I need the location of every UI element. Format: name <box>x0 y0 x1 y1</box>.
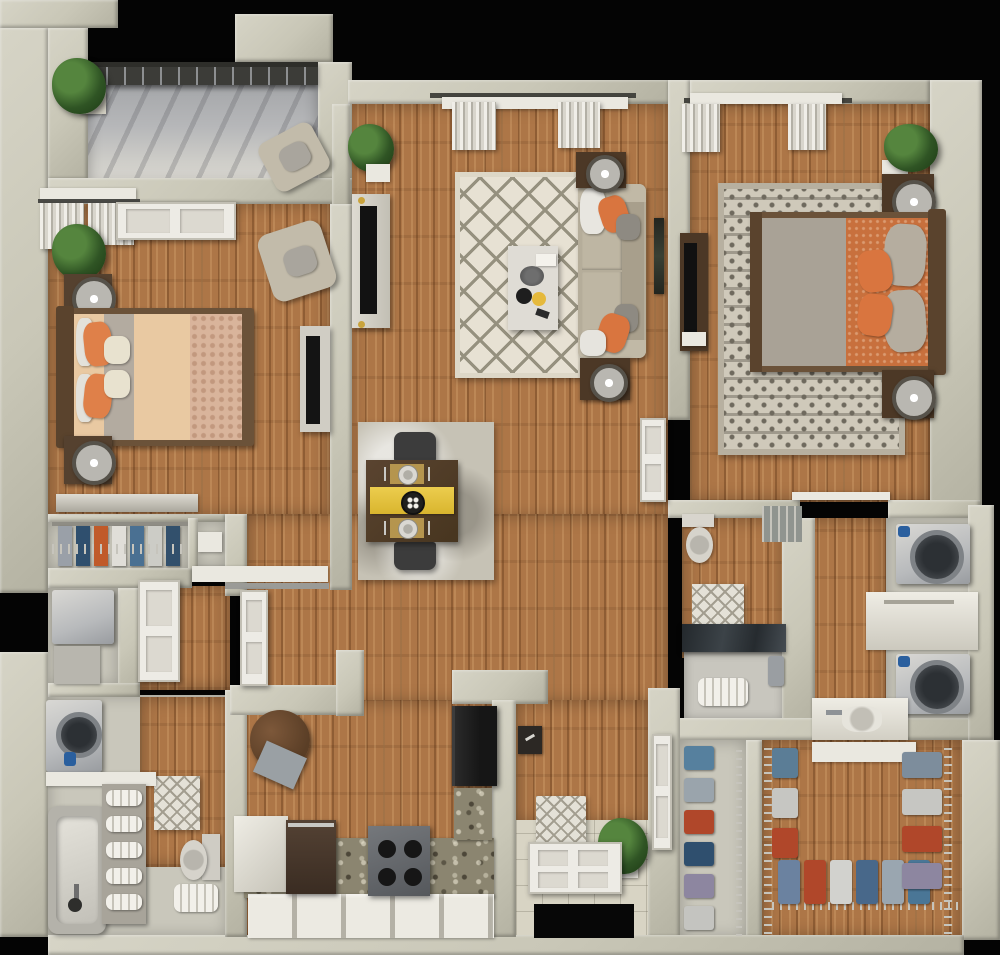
living-lamp-top <box>586 155 624 193</box>
bathroom2-toilet-tank <box>682 514 714 527</box>
nook-counter-top <box>192 566 328 582</box>
bedroom1-armchair-pillow <box>281 243 320 280</box>
balcony-door-panel <box>180 209 224 233</box>
shower-glass <box>682 624 786 652</box>
bedroom2-door-panel <box>645 464 661 492</box>
reachin-clothes <box>684 874 714 898</box>
bed2-gray-throw <box>762 218 846 366</box>
bedroom2-window-sill <box>690 93 842 104</box>
reachin-clothes <box>684 746 714 770</box>
hall-closet-door-open <box>652 734 672 850</box>
coffee-table-remote <box>535 308 550 319</box>
bed2-footboard <box>750 212 762 372</box>
dining-chair-bottom <box>394 542 436 570</box>
wall-closet-divider <box>746 740 762 938</box>
bed1-cream-pillow <box>104 370 130 398</box>
walkin-clothes-bottom <box>804 860 826 904</box>
wall-bathroom1-right <box>225 690 247 937</box>
coffee-table-bowl <box>520 266 544 286</box>
shower-towels <box>698 678 748 706</box>
entry-doormat <box>536 796 586 844</box>
stove-burner <box>378 840 396 858</box>
sofa-white-pillow-bottom <box>580 330 606 356</box>
bedroom2-lamp-bottom <box>892 376 936 420</box>
front-door-panel <box>578 872 608 888</box>
rolled-towel <box>106 790 142 806</box>
bedroom2-door-panel <box>645 426 661 454</box>
bed2-headboard <box>928 209 946 375</box>
stove-burner <box>378 868 396 886</box>
bedroom2-door-open <box>640 418 666 502</box>
bed1-cream-pillow <box>104 336 130 364</box>
living-console-knob <box>358 197 365 204</box>
bedroom2-dresser-drawer <box>682 332 706 346</box>
hall-door-panel <box>246 600 262 632</box>
living-curtain-left <box>452 102 496 150</box>
reachin-clothes <box>684 842 714 866</box>
wall-stub-dining <box>336 650 364 716</box>
hall-door-panel <box>246 642 262 674</box>
wall-left-lower <box>0 652 48 937</box>
wall-bottom <box>48 935 964 955</box>
entry-key-box <box>518 726 542 754</box>
bathroom2-bath-mat <box>692 584 744 628</box>
bathroom1-bath-mat <box>154 776 200 830</box>
wall-bedroom1-right <box>330 204 352 590</box>
wall-bath2-hall-divider <box>782 518 815 723</box>
floorplan-canvas <box>0 0 1000 955</box>
walkin-clothes-left <box>772 748 798 778</box>
reachin-wire-rail <box>736 744 742 936</box>
closet1-wire-shelf <box>52 544 188 554</box>
walkin-clothes-left <box>772 828 798 858</box>
bathroom1-detergent <box>64 752 76 766</box>
rolled-towel <box>106 894 142 910</box>
stove <box>368 826 430 896</box>
bathroom1-washer-door <box>56 712 102 758</box>
bed1-headboard <box>56 306 74 448</box>
laundry-washer-door <box>910 530 964 584</box>
wall-top-chunk <box>235 14 333 62</box>
laundry-detergent <box>898 656 910 667</box>
wall-closetblock-top <box>48 514 226 522</box>
walkin-clothes-right <box>902 752 942 778</box>
laundry-cabinet-handle <box>884 600 954 604</box>
coffee-table-book <box>536 254 556 266</box>
place-setting-plate-bottom <box>398 519 418 539</box>
laundry-dryer-door <box>910 660 964 714</box>
kitchen-left-cabinet <box>234 816 288 892</box>
bathroom1-floor-towels <box>174 884 218 912</box>
cutlery <box>428 467 430 481</box>
shower-head <box>768 656 784 686</box>
place-setting-plate-top <box>398 465 418 485</box>
bedroom2-closet-slider <box>792 492 890 500</box>
reachin-clothes <box>684 810 714 834</box>
balcony-door <box>116 202 236 240</box>
wall-utility-right <box>118 588 140 690</box>
rolled-towel <box>106 842 142 858</box>
water-heater-base <box>54 646 100 684</box>
entry-key-box-detail <box>525 734 535 742</box>
walkin-left-rack <box>764 744 772 934</box>
bedroom2-tv <box>684 243 697 341</box>
living-console-knob <box>358 321 365 328</box>
nook-tray <box>198 532 222 552</box>
bathroom1-door-panel <box>146 636 172 672</box>
hall-closet-door-panel <box>656 796 668 838</box>
wall-topleft-corner <box>0 0 118 28</box>
balcony-plant <box>52 58 106 114</box>
bedroom2-curtain-left <box>682 104 720 152</box>
balcony-door-panel <box>126 209 170 233</box>
bedroom2-curtain-right <box>788 104 826 150</box>
dishwasher-handle <box>288 823 334 827</box>
living-curtain-right <box>558 102 600 148</box>
linen-shelf <box>102 784 146 924</box>
vanity-basin <box>842 706 882 732</box>
sofa-gray-pillow-top <box>616 214 640 240</box>
living-tv <box>360 206 377 314</box>
water-heater <box>52 590 114 644</box>
wall-right-bottom <box>962 740 1000 940</box>
cutlery <box>384 467 386 481</box>
bedroom1-tv <box>306 336 320 424</box>
entry-threshold <box>534 904 634 938</box>
bathroom1-door-panel <box>146 590 172 626</box>
cutlery <box>384 521 386 535</box>
laundry-detergent <box>898 526 910 537</box>
bedroom1-plant <box>52 224 106 280</box>
vanity-sink <box>812 698 908 740</box>
rolled-towel <box>106 868 142 884</box>
coffee-table-yellow-dish <box>532 292 546 306</box>
walkin-clothes-left <box>772 788 798 818</box>
vanity-faucet <box>826 710 842 715</box>
front-door-panel <box>538 872 568 888</box>
dishwasher <box>286 820 336 894</box>
coffee-table <box>508 246 558 330</box>
balcony-armchair-pillow <box>276 138 315 175</box>
bathroom1-toilet-bowl <box>180 840 207 880</box>
walkin-clothes-bottom <box>830 860 852 904</box>
bathroom1-door-open <box>138 580 180 682</box>
walkin-clothes-right <box>902 789 942 815</box>
kitchen-counter-right <box>454 788 492 840</box>
living-wall-art <box>654 218 664 294</box>
bedroom2-plant <box>884 124 938 172</box>
reachin-clothes <box>684 778 714 802</box>
sliding-door-track <box>225 583 329 589</box>
living-lamp-bottom <box>590 364 628 402</box>
refrigerator <box>452 706 497 786</box>
walkin-clothes-bottom <box>778 860 800 904</box>
bathroom2-toilet-bowl <box>686 527 713 563</box>
coffee-table-plate <box>516 288 532 304</box>
front-door-open <box>528 842 622 894</box>
walkin-clothes-bottom <box>882 860 904 904</box>
living-plant-pot <box>366 164 390 182</box>
bathtub-drain <box>68 898 82 912</box>
wall-bedroom2-bottom-right <box>888 500 980 518</box>
kitchen-cabinet-fronts <box>248 894 494 938</box>
stove-burner <box>404 868 422 886</box>
hall-door-open <box>240 590 268 686</box>
walkin-right-rack <box>944 748 952 934</box>
bathtub <box>48 806 106 934</box>
bedroom1-bed <box>56 308 254 446</box>
wall-kitchen-top <box>230 685 350 715</box>
bedroom1-dresser <box>56 494 198 512</box>
walkin-clothes-right <box>902 826 942 852</box>
cutlery <box>428 521 430 535</box>
wall-bathroom1-top <box>48 683 140 697</box>
balcony-railing <box>88 62 318 85</box>
wall-block-kitchen-entry <box>452 670 548 704</box>
bedroom1-lamp-bottom <box>72 441 116 485</box>
dining-chair-top <box>394 432 436 462</box>
walkin-clothes-right <box>902 863 942 889</box>
hall-closet-door-panel <box>656 744 668 786</box>
walkin-clothes-bottom <box>856 860 878 904</box>
dining-centerpiece <box>401 491 425 515</box>
bed1-foot-blanket <box>190 314 242 440</box>
walkin-shelf-box <box>812 742 916 762</box>
wall-living-left <box>332 104 350 208</box>
rolled-towel <box>106 816 142 832</box>
bathroom2-storage-shelf <box>762 506 802 542</box>
front-door-panel <box>578 850 608 866</box>
laundry-cabinet <box>866 592 978 650</box>
reachin-clothes <box>684 906 714 930</box>
front-door-panel <box>538 850 568 866</box>
bedroom2-bed <box>750 212 946 372</box>
sofa <box>578 184 646 358</box>
stove-burner <box>404 840 422 858</box>
wall-left-upper <box>0 28 48 593</box>
